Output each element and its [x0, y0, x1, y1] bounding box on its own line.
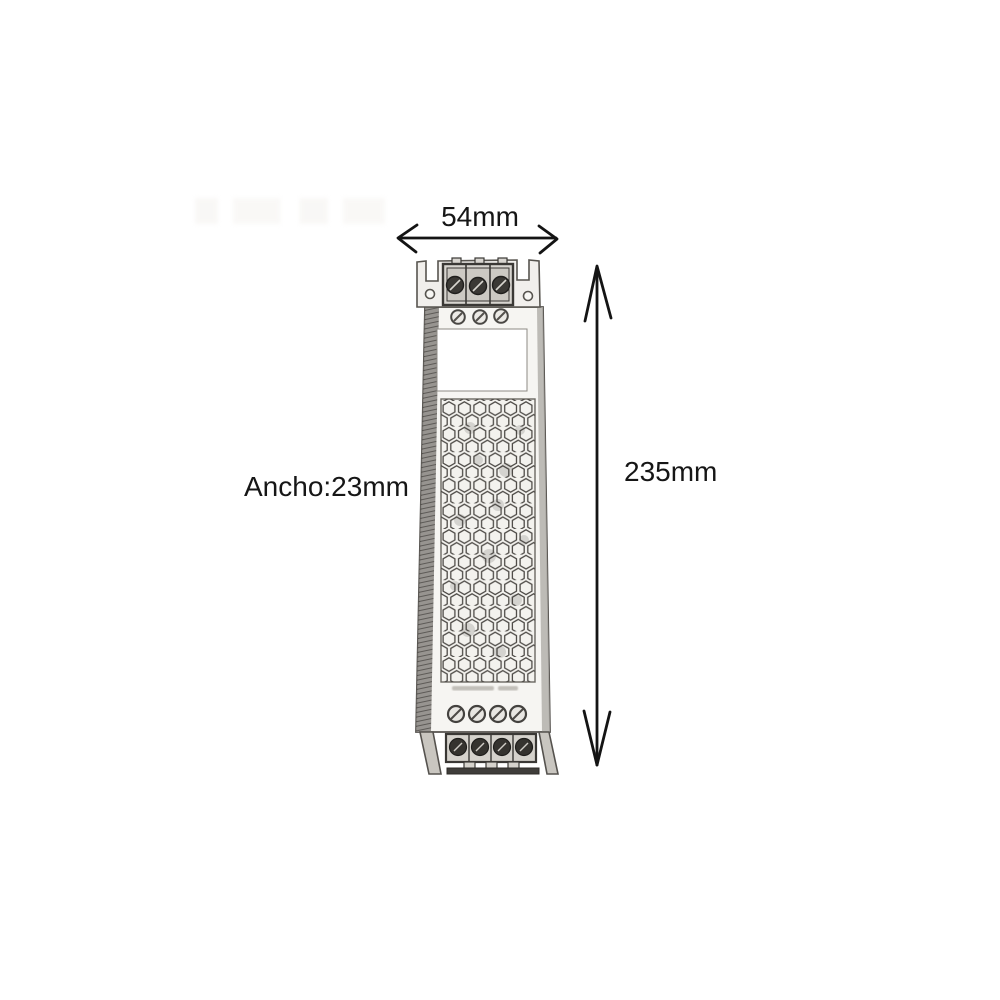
product-label — [437, 329, 527, 391]
diagram-canvas: 54mm 235mm Ancho:23mm — [0, 0, 1000, 1000]
bottom-terminal-block — [446, 734, 539, 774]
part-number-print — [452, 686, 518, 691]
bottom-bar — [447, 768, 539, 774]
top-case-screws — [451, 309, 508, 324]
bracket-hole-right — [524, 292, 533, 301]
hex-vent-grille — [441, 399, 535, 682]
device-drawing — [0, 0, 1000, 1000]
height-dimension-label: 235mm — [624, 457, 717, 488]
height-arrow — [584, 266, 611, 765]
width-dimension-label: 54mm — [398, 202, 562, 233]
top-terminal-block — [443, 258, 513, 305]
bracket-hole-left — [426, 290, 435, 299]
depth-dimension-label: Ancho:23mm — [244, 472, 409, 503]
